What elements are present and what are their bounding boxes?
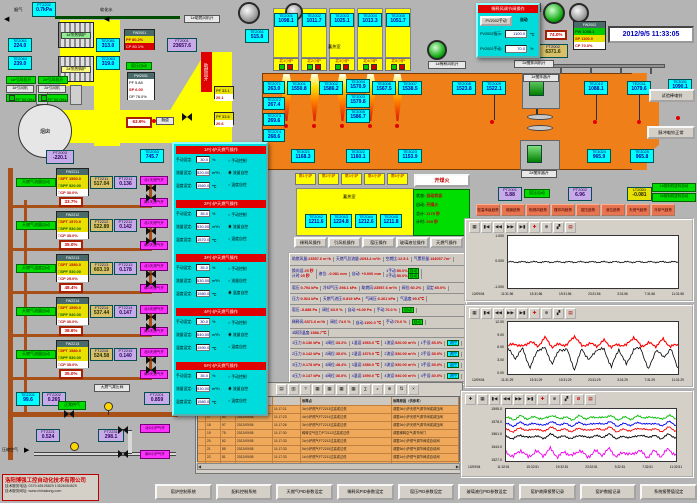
loop5-valve-position[interactable]: 35.0%: [59, 369, 83, 379]
burner-off-icon: [287, 64, 293, 70]
sensor-pt2001: PT20015.88: [498, 187, 522, 201]
sensor-te2074: TE2074268.6: [263, 129, 285, 142]
sensor-pt2215: PT22150.140: [114, 348, 137, 361]
op-fan-button[interactable]: 引风机操作: [328, 237, 361, 248]
air-valve-icon[interactable]: [118, 426, 128, 434]
stirrer2-label: 2#搅拌器开: [521, 170, 557, 178]
trend-chart-pressure-sp: ▦▮◀◀◀▶▶▶▮✚⊕▞▤ 12.009.006.003.000.00 12/0…: [464, 304, 694, 388]
boiler2-label: 2#余热锅炉: [61, 66, 91, 73]
sensor-te2002: TE20021011.7: [302, 13, 326, 27]
regen-south-label: 蓄热室: [343, 194, 356, 200]
loop1-valve-position[interactable]: 33.7%: [59, 197, 83, 207]
valve-icon[interactable]: [146, 184, 156, 192]
sensor-te3007: TE30071538.5: [398, 81, 422, 95]
sensor-te2004: TE20041013.3: [358, 13, 382, 27]
chart3-xaxis: 12/09/0411:32:5115:32:5119:32:5123:32:51…: [468, 465, 682, 469]
sensor-te2010: TE20101088.1: [584, 81, 608, 95]
popup-section-2: 2#小炉天燃气操作 手动设定:35.0% 流量设定:530.00m³/h 温度设…: [176, 200, 266, 251]
sensor-ft2221: FT22210.524: [36, 429, 60, 442]
alarm-row: 19752012/09/0511:17:30稀释空气压力PT2112过高或过低调…: [198, 430, 459, 438]
sensor-ft2001: FT200123657.6: [167, 38, 197, 52]
fan2-on-label: 2#引风机开: [38, 76, 68, 84]
trend-chart-kiln-pressure: ▦▮◀◀◀▶▶▶▮✚⊕▞▤ 1.0000.000-1.000 12/09/041…: [464, 218, 694, 302]
chart3-yaxis: 1595.01578.01561.01544.01527.0: [474, 408, 502, 462]
chart2-xaxis: 12/09/0411:31:2915:31:2919:31:2923:31:29…: [472, 378, 684, 382]
sensor-pt2202-top: PT22020.7kPa: [32, 2, 56, 17]
trend-cooling-button[interactable]: 冷却气趋势: [651, 204, 675, 216]
sensor-te2081: TE2081313.0: [96, 38, 120, 52]
op-pressure-button[interactable]: 窑压操作: [362, 237, 395, 248]
fan1-label: 1#引风机: [6, 85, 34, 93]
ignition-status-box: 状态: 自动状态 自动: 开煤火 总计: 1175 秒 计时: 269 秒: [413, 189, 470, 236]
stir-fan-pump-icon: [543, 2, 565, 24]
chart2-toolbar: ▦▮◀◀◀▶▶▶▮✚⊕▞▤: [469, 308, 576, 319]
air-valve-icon[interactable]: [118, 450, 128, 458]
fan1-on-label: 1#引风机开: [6, 76, 36, 84]
sensor-ft2214: FT2214537.44: [90, 305, 113, 318]
chart3-toolbar: ✚▦▮◀◀◀▶▶▶▮✚⊕▞⊘▤: [465, 394, 596, 405]
temp-set-input[interactable]: 1560.0: [196, 182, 210, 189]
south-burner-4[interactable]: 南4小炉: [364, 173, 385, 185]
scroll-right-icon[interactable]: ▶: [456, 464, 459, 469]
sensor-te2011: TE20111079.6: [627, 81, 651, 95]
combustion-air-open-label: 助燃风开: [201, 52, 212, 92]
sensor-te2053: TE2053745.7: [140, 149, 164, 163]
feeder2-auto-label: 2#投料机进料自动: [652, 193, 696, 202]
soft-water-label: 软化水: [100, 7, 113, 13]
compressed-air-label: 压缩空气: [2, 447, 18, 453]
fault-point-header: 故障点: [301, 397, 392, 405]
fault-cause-header: 故障原因（供参考）: [392, 397, 459, 405]
regen-north-label: 蓄热室: [328, 44, 341, 50]
sensor-te2042: TE20421211.6: [305, 214, 327, 228]
section-title: 1#小炉天燃气操作: [176, 146, 266, 154]
sensor-ft2201: FT22010.859: [144, 392, 170, 405]
pv2002-ind-value[interactable]: 1100.0: [505, 30, 527, 38]
op-gas-button[interactable]: 天燃气操作: [430, 237, 463, 248]
north-burner-1[interactable]: 北1小炉: [273, 58, 299, 71]
feeder1-auto-label: 1#投料机进料自动: [652, 183, 696, 192]
stirrer1-label: 1#搅拌器开: [523, 74, 559, 82]
sensor-te3003: TE30031579.8: [346, 94, 370, 108]
pv2002-man-label: PV2002手动:: [480, 47, 502, 52]
flue-gas-pipe: [55, 16, 180, 19]
normal-supply-label: 正常供气: [58, 401, 86, 410]
pipe-leg: [620, 68, 622, 74]
fw2211-controller[interactable]: FW2211□SPT 1560.0□SPF 520.00□CP 30.0%: [56, 168, 89, 196]
datetime: 2012/9/5 11:33:05: [623, 31, 680, 38]
fw2215-controller[interactable]: FW2215□SPT 1580.0□SPF 530.00□CP 35.0%: [56, 340, 89, 368]
sensor-lt2001: LT2001-0.081: [627, 187, 652, 201]
nav-alarm-setting-button[interactable]: 系统报警值设定: [640, 484, 697, 500]
sensor-ft2212: FT2212522.89: [90, 219, 113, 232]
company-name: 洛阳博强工控自动化技术有限公司: [5, 476, 96, 484]
popup-section-5: 5#小炉天燃气操作 手动设定:35.0% 流量设定:530.00m³/h 温度设…: [176, 362, 266, 413]
loop3-auto-label: 天燃气温度自动: [16, 264, 56, 273]
sensor-te2003: TE20031025.1: [330, 13, 354, 27]
fw2213-controller[interactable]: FW2213□SPT 1580.0□SPF 530.00□CP 25.0%: [56, 254, 89, 282]
south6-open: 南6小炉气开: [140, 450, 170, 459]
flue-gas-arrow-icon: ◀: [4, 15, 9, 23]
popup-section-4: 4#小炉天燃气操作 手动设定:30.0% 流量设定:540.00m³/h 温度设…: [176, 308, 266, 359]
sensor-te2005: TE20051051.7: [386, 13, 410, 27]
sensor-te2061: TE2061224.0: [8, 38, 32, 52]
loop4-valve-position[interactable]: 38.6%: [59, 326, 83, 336]
nav-data-record-button[interactable]: 窑炉数据记录: [580, 484, 637, 500]
flue-label: 烟道: [156, 117, 174, 125]
boiler-downcomer: [70, 85, 82, 105]
sensor-ft2215: FT2215524.58: [90, 348, 113, 361]
process-data-panel: 助燃风量:23557.6 m³/h天燃气总流量:2693.4 m³/h空燃比:1…: [288, 252, 467, 385]
pw2001-controller[interactable]: PW2001PF 5.88SP 6.00OP 78.0%: [127, 72, 155, 100]
sensor-te2008: TE20081523.8: [452, 81, 476, 95]
sensor-te2051: TE2051515.8: [245, 29, 269, 43]
popup-section-1: 1#小炉天燃气操作 手动设定:30.0% 流量设定:520.00m³/h 温度设…: [176, 146, 266, 197]
dilution-fan-pump-icon: [427, 40, 447, 60]
boiler1-label: 1#余热锅炉: [61, 32, 91, 39]
company-info-box: 洛阳博强工控自动化技术有限公司 技术服务电话: 0379-65105829 13…: [2, 474, 99, 501]
fw2214-controller[interactable]: FW2214□SPT 1590.0□SPF 540.00□CP 30.0%: [56, 297, 89, 325]
trend-flue-button[interactable]: 烟道趋势: [501, 204, 525, 216]
sensor-te3023: TE30231153.9: [398, 149, 422, 163]
run-indicator-icon: [41, 95, 47, 101]
sensor-te2071: TE2071263.0: [263, 81, 285, 94]
alarm-row: 18972012/09/0511:17:263#小炉燃气FT2213过高或过低调…: [198, 422, 459, 430]
trend-comb-air-button[interactable]: 助燃风趋势: [526, 204, 550, 216]
compressed-air-riser: [128, 430, 132, 454]
fan1-freq: PF 50.0Hz: [6, 94, 36, 102]
nav-gas-pid-button[interactable]: 天燃气PID参数设定: [276, 484, 333, 500]
loop3-valve-position[interactable]: 48.4%: [59, 283, 83, 293]
loop5-auto-label: 天燃气流量自动: [16, 350, 56, 359]
pipe-leg: [560, 68, 562, 74]
alarm-row: 21852012/09/0511:17:335#小炉燃气FT2215过高或过低调…: [198, 446, 459, 454]
sensor-ft2211: FT2211517.04: [90, 176, 113, 189]
sensor-te2201: TE220199.6: [16, 392, 40, 406]
burner-on-icon: [279, 64, 285, 70]
actuator-icon[interactable]: [104, 402, 113, 411]
pv2002-auto-label: 自动: [520, 18, 528, 23]
sensor-te2043: TE20431224.8: [330, 214, 352, 228]
fan2-label: 2#引风机: [38, 85, 66, 93]
popup-title: 稀释风调节阀操作: [478, 5, 538, 13]
company-web: 技术服务网址: www.chinakong.com: [5, 489, 96, 494]
sensor-te2073: TE2073269.6: [263, 113, 285, 126]
sensor-te2072: TE2072267.4: [263, 97, 285, 110]
dilution-valve-popup: 稀释风调节阀操作 PV2002手动 自动 PV2002指示: 1100.0 ℃ …: [476, 3, 540, 58]
sensor-pt2003: PT2003-220.1: [46, 150, 74, 164]
sensor-te2009: TE20091522.1: [482, 81, 506, 95]
nav-kiln-control-button[interactable]: 窑炉控制系统: [155, 484, 212, 500]
radio-manual[interactable]: ○ 手动控制: [228, 159, 247, 164]
combustion-fan1-label: 1#助燃风机开: [184, 15, 220, 23]
sensor-pt2002: PT20026.96: [568, 187, 592, 201]
radio-flow[interactable]: ◉ 流量自控: [228, 171, 248, 176]
radio-temp[interactable]: ○ 温度自控: [228, 183, 247, 188]
nav-pressure-pid-button[interactable]: 窑压PID参数设定: [398, 484, 455, 500]
sensor-pt2213: PT22130.178: [114, 262, 137, 275]
sensor-pt2214: PT22140.147: [114, 305, 137, 318]
datetime-box: 2012/9/5 11:33:05: [608, 26, 694, 43]
dilution-fan1-label: 1#稀释风机开: [428, 61, 466, 69]
valve-icon[interactable]: [146, 194, 156, 202]
fw2001-controller[interactable]: FW2001PF 80.2%CP 80.1%: [124, 29, 155, 50]
trend-level-button[interactable]: 液位趋势: [601, 204, 625, 216]
sensor-te3006: TE30061567.5: [372, 81, 396, 95]
pulse-bell-button[interactable]: 脉冲电铃正常: [647, 126, 695, 139]
alarm-row: 22812012/09/0511:17:331#小炉燃气FT2211过高或过低调…: [198, 454, 459, 462]
sensor-te2063: TE2063319.0: [96, 56, 120, 70]
nav-batch-control-button[interactable]: 配料控制系统: [216, 484, 273, 500]
alarm-row: 20822012/09/0511:17:332#小炉燃气FT2212过高或过低调…: [198, 438, 459, 446]
sensor-ft2213: FT2213603.19: [90, 262, 113, 275]
stirrer-disc-icon: [527, 114, 553, 120]
sensor-te3005: TE30051586.7: [346, 109, 370, 123]
loop1-auto-label: 天燃气流量自动: [16, 178, 56, 187]
sensor-te2044: TE20441212.6: [355, 214, 377, 228]
test-bell-button[interactable]: 试验棒电铃: [649, 89, 695, 102]
fan-pump-icon: [569, 3, 589, 23]
nav-level-pid-button[interactable]: 玻璃液位PID参数设定: [458, 484, 515, 500]
pipe-leg: [590, 68, 592, 74]
dilution-valve-position[interactable]: 74.0%: [545, 30, 567, 40]
nav-alarm-record-button[interactable]: 窑炉故障报警记录: [519, 484, 576, 500]
pv2002-manual-button[interactable]: PV2002手动: [480, 16, 512, 26]
feeder1-vfd[interactable]: PF 33.120.1: [214, 86, 234, 99]
fw2002-controller[interactable]: FW2002PW 1098.1SP 1100.0CP 70.0%: [573, 21, 606, 50]
chart-tool-icon[interactable]: ▦: [469, 222, 480, 233]
alarm-toolbar: ▤▥?▦▦▦▦∑◒⊕⇅×: [276, 384, 419, 395]
fan-pump-icon: [238, 2, 260, 24]
sensor-te3024: TE3024965.9: [587, 149, 611, 163]
air-header-pipe: [540, 64, 665, 68]
sensor-pt2212: PT22120.142: [114, 219, 137, 232]
sensor-te3021: TE30211168.3: [291, 149, 315, 163]
south-burner-5[interactable]: 南5小炉: [387, 173, 408, 185]
popup-section-3: 3#小炉天燃气操作 手动设定:35.0% 流量设定:530.00m³/h 温度设…: [176, 254, 266, 305]
flue-damper-valve-icon[interactable]: [182, 113, 192, 121]
stirrer-disc-icon: [527, 125, 553, 131]
chart1-xaxis: 12/09/0411:31:5615:31:5619:31:5623:31:56…: [472, 292, 684, 296]
fw2212-controller[interactable]: FW2212□SPT 1570.0□SPF 530.00□CP 35.0%: [56, 211, 89, 239]
op-level-button[interactable]: 玻璃液位操作: [396, 237, 429, 248]
alarm-tool-icon[interactable]: ▤: [276, 384, 287, 395]
sensor-te2064: TE2064239.0: [8, 56, 32, 70]
north-burner-2[interactable]: 北2小炉: [301, 58, 327, 71]
air-arrow-icon: ▶: [24, 446, 29, 454]
chart2-yaxis: 12.009.006.003.000.00: [478, 321, 504, 375]
stirrer-motor-icon: [527, 145, 542, 163]
loop2-auto-label: 天燃气流量自动: [16, 221, 56, 230]
north6-open: 北6小炉气开: [140, 424, 170, 433]
pipe-leg: [650, 68, 652, 74]
kiln-pressure-auto-label: 窑压自动: [126, 62, 152, 70]
trend-gas-button[interactable]: 天燃气趋势: [626, 204, 650, 216]
waste-heat-boiler-1[interactable]: 1#余热锅炉: [58, 22, 94, 48]
loop4-auto-label: 天燃气流量自动: [16, 307, 56, 316]
south-burner-3[interactable]: 南3小炉: [341, 173, 362, 185]
chart1-toolbar: ▦▮◀◀◀▶▶▶▮✚⊕▞▤: [469, 222, 576, 233]
sensor-te2045: TE20451211.8: [380, 214, 402, 228]
stir-fan2-label: 2#搅拌风机开: [514, 60, 554, 68]
flue-gas-label: 烟气: [14, 7, 22, 13]
chart1-yaxis: 1.0000.000-1.000: [478, 235, 504, 289]
pv2002-man-value[interactable]: 70.0: [505, 45, 527, 53]
sensor-ft2002: FT20026371.6: [538, 44, 568, 58]
loop2-valve-position[interactable]: 35.0%: [59, 240, 83, 250]
gas-main-bottom: [10, 412, 178, 417]
bottom-nav-bar: 窑炉控制系统 配料控制系统 天燃气PID参数设定 稀释风PID参数设定 窑压PI…: [155, 484, 697, 500]
coal-fire-button[interactable]: 开煤火: [414, 174, 470, 187]
fan2-freq: PF 50.0Hz: [38, 94, 68, 102]
nav-dilution-pid-button[interactable]: 稀释风PID参数设定: [337, 484, 394, 500]
flue-valve-position[interactable]: 63.9%: [126, 117, 152, 128]
trend-kiln-cascade-button[interactable]: 窑温串级趋势: [476, 204, 500, 216]
soft-water-arrow-icon: ◀: [104, 15, 109, 23]
gas-main-valve-icon[interactable]: [64, 410, 74, 418]
south-burner-2[interactable]: 南2小炉: [318, 173, 339, 185]
kiln-auto-label: 窑压自动: [524, 189, 550, 198]
sensor-te3022: TE30221160.1: [346, 149, 370, 163]
gas-relief-valve-label: 天燃气减压阀: [94, 384, 130, 392]
trend-chart-crown-temps: ✚▦▮◀◀◀▶▶▶▮✚⊕▞⊘▤ 1595.01578.01561.01544.0…: [460, 390, 694, 478]
chart1-plot[interactable]: [507, 235, 679, 289]
trend-pressure-button[interactable]: 窑压趋势: [576, 204, 600, 216]
sensor-te3004: TE30041570.9: [346, 79, 370, 93]
sensor-te3002: TE30021586.2: [319, 81, 343, 95]
trend-stir-air-button[interactable]: 搅拌风趋势: [551, 204, 575, 216]
chimney-label: 烟囱: [40, 128, 50, 135]
scada-screen: 烟气 ◀ PT22020.7kPa 软化水 ◀ 1#余热锅炉 2#余热锅炉 TE…: [0, 0, 697, 503]
manual-set-input[interactable]: 30.0: [196, 156, 210, 163]
north-burner-3[interactable]: 北3小炉: [329, 58, 355, 71]
north-burner-5[interactable]: 北5小炉: [385, 58, 411, 71]
pv2002-ind-label: PV2002指示:: [480, 32, 502, 37]
flow-set-input[interactable]: 520.00: [196, 169, 210, 176]
sensor-te3001: TE30011550.8: [287, 81, 311, 95]
south-burner-1[interactable]: 南1小炉: [295, 173, 316, 185]
sensor-te3025: TE3025965.8: [630, 149, 654, 163]
sensor-pt2211: PT22110.136: [114, 176, 137, 189]
run-indicator-icon: [9, 95, 15, 101]
chart2-plot[interactable]: [507, 321, 679, 375]
alarm-scrollbar[interactable]: ◀▶: [197, 463, 460, 470]
north-burner-4[interactable]: 北4小炉: [357, 58, 383, 71]
actuator-icon[interactable]: [70, 442, 79, 451]
scroll-left-icon[interactable]: ◀: [198, 464, 201, 469]
sensor-te2001: TE20011098.1: [274, 13, 298, 27]
chart3-plot[interactable]: [505, 408, 677, 462]
burner-gas-popup: 1#小炉天燃气操作 手动设定:30.0% 流量设定:520.00m³/h 温度设…: [172, 142, 268, 416]
op-dilution-button[interactable]: 稀释风操作: [294, 237, 327, 248]
feeder2-vfd[interactable]: PF 33.620.6: [214, 112, 234, 125]
